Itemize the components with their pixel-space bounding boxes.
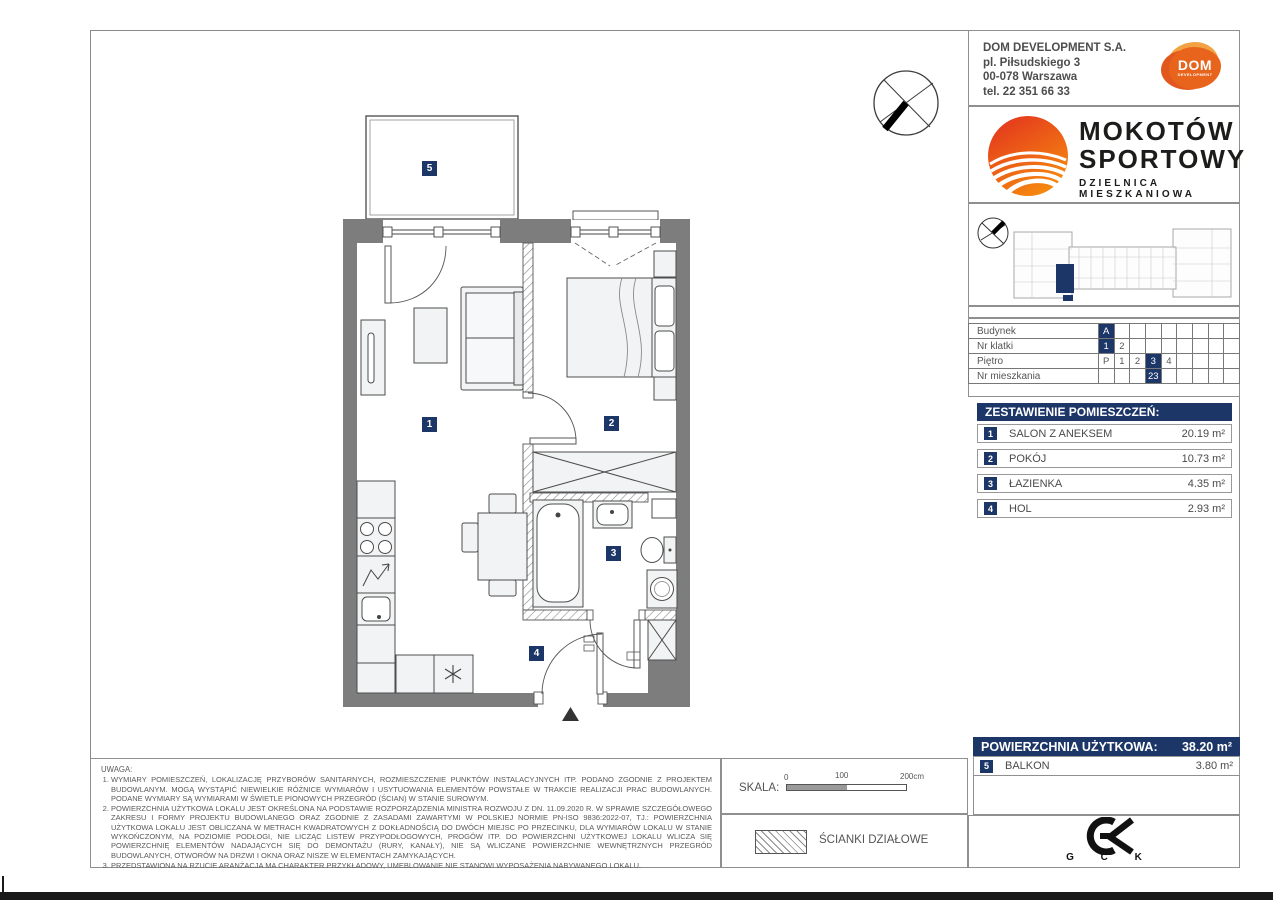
bedside-shelf (654, 377, 676, 400)
room-number-badge: 4 (984, 502, 997, 515)
room-number-badge: 3 (984, 477, 997, 490)
pillow (655, 331, 674, 371)
room-number-badge: 2 (984, 452, 997, 465)
bathroom-shelf (652, 499, 676, 518)
siteplan-box (968, 203, 1240, 306)
balcony-door-swing (385, 246, 446, 303)
chair (489, 580, 516, 596)
partition-wall-swatch (755, 830, 807, 854)
coffee-table (414, 308, 447, 363)
unit-info-cell: P (1098, 354, 1114, 368)
wardrobe (533, 452, 676, 492)
room-row: 2POKÓJ10.73 m² (977, 449, 1232, 468)
unit-info-cell (1223, 369, 1239, 383)
scale-tick-0: 0 (784, 773, 788, 782)
minimap-compass-icon (978, 218, 1008, 248)
kitchen-units (357, 481, 473, 693)
room-name: POKÓJ (1009, 453, 1182, 465)
plan-room-badge: 2 (604, 416, 619, 431)
unit-info-row: BudynekA (968, 323, 1240, 339)
note-item: WYMIARY POMIESZCZEŃ, LOKALIZACJĘ PRZYBOR… (111, 775, 712, 803)
unit-info-cell (1114, 369, 1130, 383)
brand-tagline: DZIELNICA MIESZKANIOWA (1079, 178, 1246, 200)
hall-wardrobe (648, 620, 676, 660)
notes-box: UWAGA: WYMIARY POMIESZCZEŃ, LOKALIZACJĘ … (90, 758, 721, 868)
unit-info-box: BudynekANr klatki12PiętroP1234Nr mieszka… (968, 318, 1240, 397)
empty-box (973, 775, 1240, 815)
bed (567, 278, 652, 377)
gck-box: G C K (968, 815, 1240, 868)
room-area: 10.73 m² (1182, 453, 1225, 465)
scale-box: SKALA: 0 100 200cm (721, 758, 968, 814)
hob (357, 518, 395, 556)
nightstand (654, 251, 676, 277)
bedroom-door-swing (528, 393, 576, 444)
company-phone: tel. 22 351 66 33 (983, 85, 1126, 100)
balcony-name: BALKON (1005, 760, 1196, 772)
scale-bar (786, 784, 907, 791)
plan-room-badge: 5 (422, 161, 437, 176)
window-balcony-door (383, 220, 500, 242)
room-area: 4.35 m² (1188, 478, 1225, 490)
unit-info-cell (1192, 369, 1208, 383)
dishwasher (357, 556, 395, 593)
note-item: POWIERZCHNIA UŻYTKOWA LOKALU JEST OKREŚL… (111, 804, 712, 860)
north-compass-icon (874, 71, 938, 135)
unit-info-row: Nr mieszkania23 (968, 368, 1240, 384)
bathroom-fixtures (533, 499, 677, 660)
unit-info-cell (1208, 369, 1224, 383)
unit-info-cell (1223, 324, 1239, 338)
mokotow-sportowy-logo-icon (986, 114, 1070, 198)
notes-title: UWAGA: (101, 765, 720, 774)
unit-info-cell (1129, 339, 1145, 353)
unit-info-cell (1176, 339, 1192, 353)
kitchen-sink (357, 593, 395, 625)
unit-info-cell: 3 (1145, 354, 1161, 368)
unit-info-cell (1161, 339, 1177, 353)
scale-tick-100: 100 (835, 771, 848, 780)
plan-room-badge: 3 (606, 546, 621, 561)
unit-info-label: Nr mieszkania (969, 369, 1098, 383)
plan-room-badge: 1 (422, 417, 437, 432)
room-row: 3ŁAZIENKA4.35 m² (977, 474, 1232, 493)
site-plan-minimap (969, 204, 1239, 305)
gck-logo-icon (1070, 817, 1140, 855)
scale-label: SKALA: (739, 782, 779, 794)
unit-info-cell (1176, 324, 1192, 338)
unit-info-cell (1161, 369, 1177, 383)
unit-info-label: Budynek (969, 324, 1098, 338)
unit-info-cell (1098, 369, 1114, 383)
unit-info-cell (1192, 354, 1208, 368)
unit-info-cell: 4 (1161, 354, 1177, 368)
company-name: DOM DEVELOPMENT S.A. (983, 41, 1126, 56)
unit-info-cell (1208, 339, 1224, 353)
usable-area-bar: POWIERZCHNIA UŻYTKOWA: 38.20 m² (973, 737, 1240, 756)
dom-development-logo: DOM DEVELOPMENT (1161, 42, 1225, 92)
unit-info-label: Piętro (969, 354, 1098, 368)
scale-tick-200: 200cm (900, 772, 924, 781)
unit-info-cell (1208, 324, 1224, 338)
dining-set (462, 494, 527, 596)
company-address-2: 00-078 Warszawa (983, 70, 1126, 85)
room-row: 1SALON Z ANEKSEM20.19 m² (977, 424, 1232, 443)
plan-room-badge: 4 (529, 646, 544, 661)
bedroom-furniture (533, 251, 676, 492)
room-number-badge: 1 (984, 427, 997, 440)
unit-info-cell (1176, 369, 1192, 383)
company-address-1: pl. Piłsudskiego 3 (983, 56, 1126, 71)
balcony-number-badge: 5 (980, 760, 993, 773)
legend-box: ŚCIANKI DZIAŁOWE (721, 814, 968, 868)
left-edge-tick (2, 876, 4, 900)
washbasin (593, 501, 632, 528)
brand-name-line1: MOKOTÓW (1079, 117, 1246, 145)
unit-info-cell: 1 (1114, 354, 1130, 368)
toilet (641, 537, 676, 563)
usable-area-value: 38.20 m² (1182, 740, 1232, 754)
brand-name-line2: SPORTOWY (1079, 145, 1246, 173)
unit-info-cell: 2 (1129, 354, 1145, 368)
rooms-list: 1SALON Z ANEKSEM20.19 m²2POKÓJ10.73 m²3Ł… (977, 424, 1232, 524)
brand-box: MOKOTÓW SPORTOWY DZIELNICA MIESZKANIOWA (968, 106, 1240, 203)
balcony-outline (366, 116, 518, 219)
room-area: 20.19 m² (1182, 428, 1225, 440)
unit-info-table: BudynekANr klatki12PiętroP1234Nr mieszka… (968, 324, 1240, 384)
unit-info-cell (1192, 324, 1208, 338)
contact-box: DOM DEVELOPMENT S.A. pl. Piłsudskiego 3 … (968, 30, 1240, 106)
unit-info-cell (1114, 324, 1130, 338)
unit-info-cell (1145, 324, 1161, 338)
balcony-area: 3.80 m² (1196, 760, 1233, 772)
unit-info-cell: 2 (1114, 339, 1130, 353)
unit-info-cell (1192, 339, 1208, 353)
panel-spacer (968, 306, 1240, 318)
room-area: 2.93 m² (1188, 503, 1225, 515)
unit-info-row: Nr klatki12 (968, 338, 1240, 354)
unit-info-row: PiętroP1234 (968, 353, 1240, 369)
tv-screen (368, 333, 374, 383)
unit-info-cell: 23 (1145, 369, 1161, 383)
fridge (434, 655, 473, 693)
unit-info-cell (1161, 324, 1177, 338)
unit-info-cell (1129, 369, 1145, 383)
pillow (655, 286, 674, 326)
balcony-row: 5 BALKON 3.80 m² (973, 756, 1240, 776)
entrance-marker-icon (562, 707, 579, 721)
unit-info-cell: 1 (1098, 339, 1114, 353)
usable-area-label: POWIERZCHNIA UŻYTKOWA: (981, 740, 1158, 754)
unit-info-cell (1145, 339, 1161, 353)
dom-logo-text: DOM (1178, 59, 1212, 72)
chair (462, 523, 478, 552)
note-item: PRZEDSTAWIONA NA RZUCIE ARANŻACJA MA CHA… (111, 861, 712, 870)
notes-list: WYMIARY POMIESZCZEŃ, LOKALIZACJĘ PRZYBOR… (101, 775, 712, 870)
partition-wall-label: ŚCIANKI DZIAŁOWE (819, 834, 928, 846)
chair (489, 494, 516, 513)
unit-info-cell (1176, 354, 1192, 368)
dining-table (478, 513, 527, 580)
unit-info-cell (1129, 324, 1145, 338)
rooms-list-header: ZESTAWIENIE POMIESZCZEŃ: (977, 403, 1232, 421)
unit-info-label: Nr klatki (969, 339, 1098, 353)
unit-info-cell (1223, 339, 1239, 353)
room-name: HOL (1009, 503, 1188, 515)
floorplan-document-page: 51234 DOM DEVELOPMENT S.A. pl. Piłsudski… (0, 0, 1273, 900)
bathtub (533, 500, 583, 607)
room-name: ŁAZIENKA (1009, 478, 1188, 490)
washing-machine (647, 570, 677, 608)
unit-info-cell: A (1098, 324, 1114, 338)
room-row: 4HOL2.93 m² (977, 499, 1232, 518)
window-bedroom (571, 211, 660, 266)
bottom-edge-bar (0, 892, 1273, 900)
gck-letters: G C K (969, 852, 1239, 863)
room-name: SALON Z ANEKSEM (1009, 428, 1182, 440)
unit-info-cell (1208, 354, 1224, 368)
dom-logo-subtext: DEVELOPMENT (1178, 72, 1213, 77)
unit-info-cell (1223, 354, 1239, 368)
